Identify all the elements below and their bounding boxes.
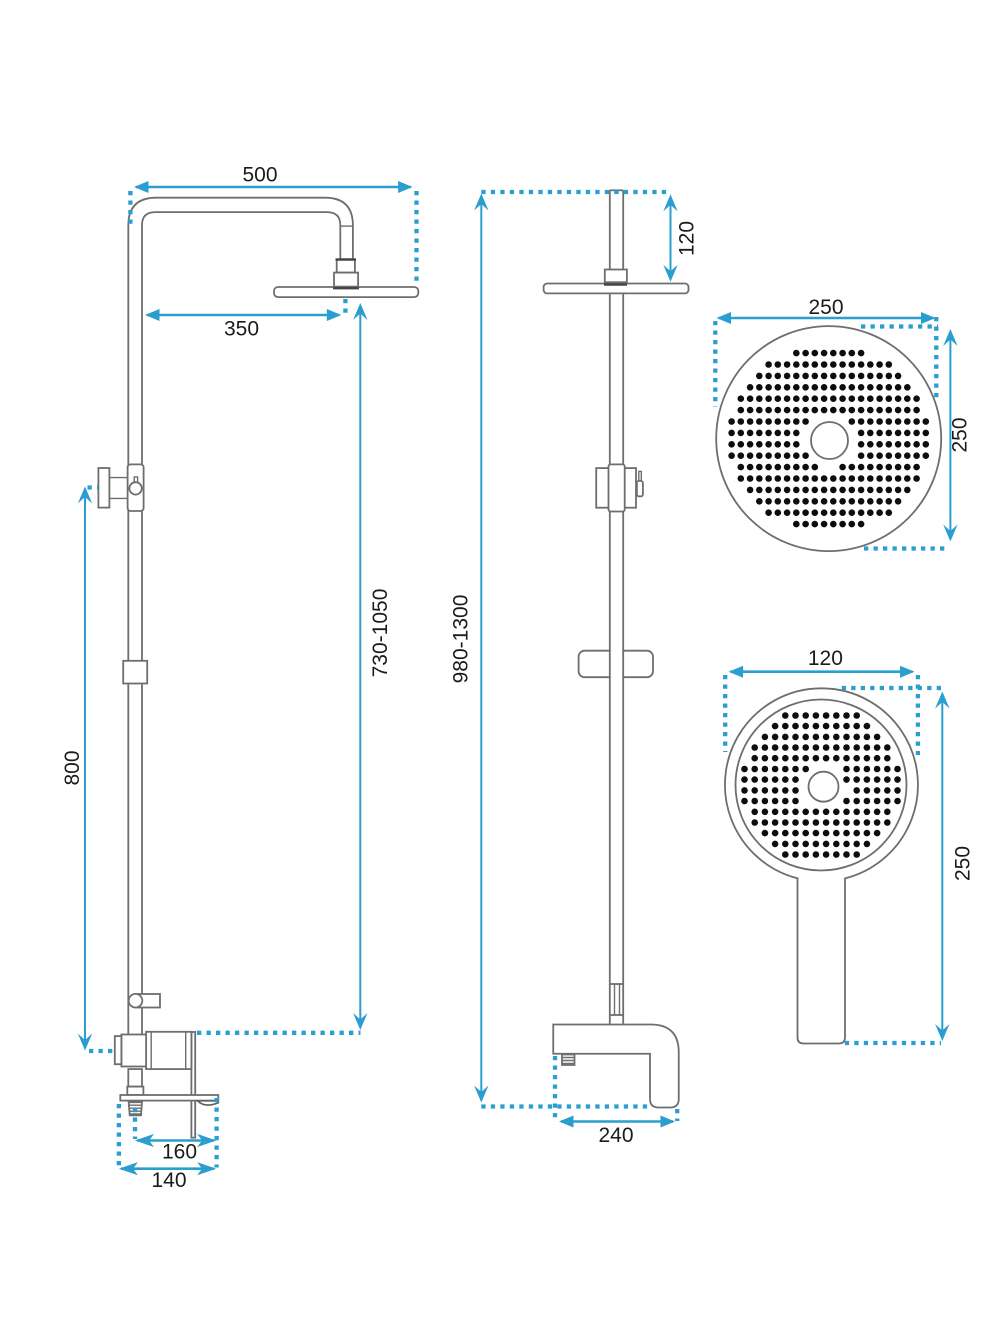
svg-text:800: 800 bbox=[61, 750, 84, 785]
svg-text:240: 240 bbox=[598, 1124, 633, 1147]
svg-text:730-1050: 730-1050 bbox=[369, 589, 392, 678]
svg-text:250: 250 bbox=[952, 846, 975, 881]
svg-text:160: 160 bbox=[162, 1141, 197, 1164]
svg-text:250: 250 bbox=[949, 417, 972, 452]
svg-text:250: 250 bbox=[808, 296, 843, 319]
svg-text:980-1300: 980-1300 bbox=[450, 595, 473, 684]
svg-text:350: 350 bbox=[224, 318, 259, 341]
svg-text:140: 140 bbox=[151, 1169, 186, 1192]
svg-text:120: 120 bbox=[808, 647, 843, 670]
svg-text:120: 120 bbox=[675, 221, 698, 256]
svg-text:500: 500 bbox=[242, 164, 277, 187]
